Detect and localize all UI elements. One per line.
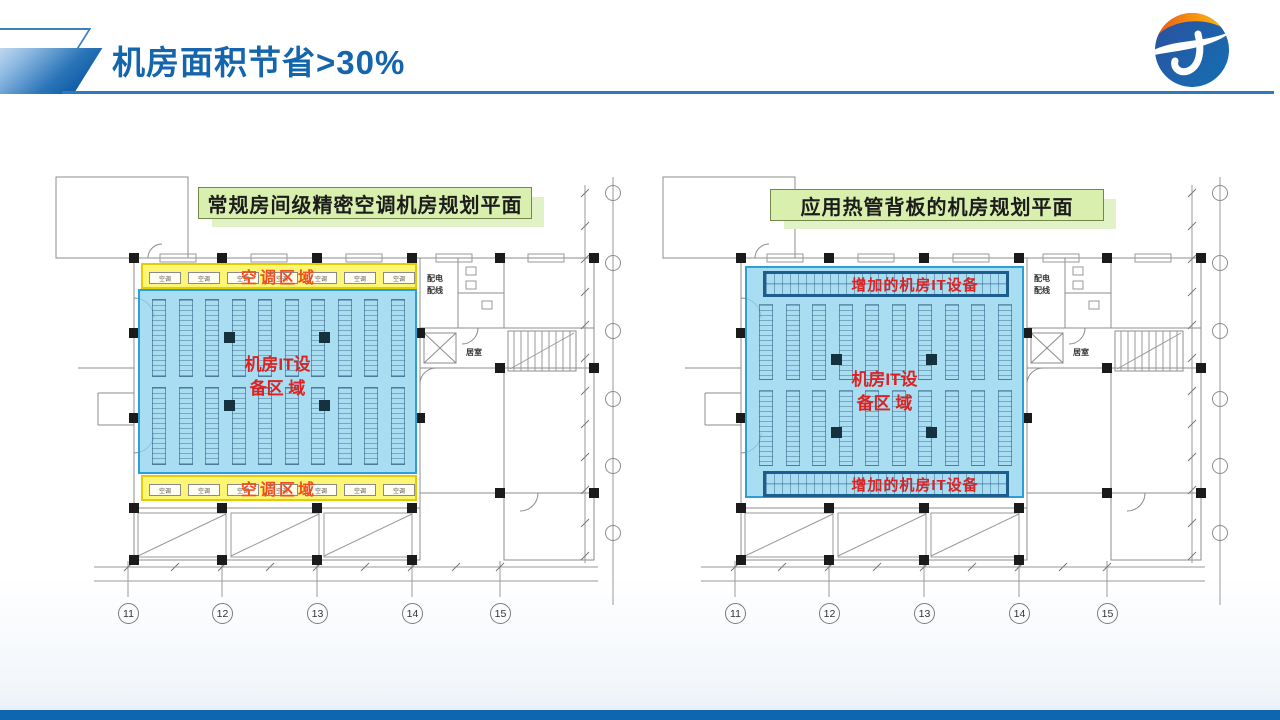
column-square [919,555,929,565]
column-square [1102,488,1112,498]
wall-rect [1073,267,1083,275]
column-square [824,503,834,513]
door-arc [520,493,538,511]
column-square [312,555,322,565]
column-square [129,555,139,565]
it-zone-label: 机房IT设 备区 域 [747,368,1022,416]
door-arc [1069,328,1085,344]
wall-line [745,514,833,556]
right-floor-plan: 应用热管背板的机房规划平面 增加的机房IT设备 机房IT设 备区 域 增加的机房… [645,163,1257,628]
column-square [217,253,227,263]
column-square [1196,488,1206,498]
column-square [736,503,746,513]
column-square [1102,363,1112,373]
left-floor-plan: 常规房间级精密空调机房规划平面 空调区域 空调空调空调空调空调空调空调 机房IT… [38,163,650,628]
column-square [919,503,929,513]
it-zone-label-line1: 机房IT设 [140,353,415,377]
wall-line [838,514,926,556]
header-decor-gradient-shape [0,48,102,94]
ac-zone-bottom: 空调区域 空调空调空调空调空调空调空调 [141,475,417,501]
column-square [1014,253,1024,263]
added-it-box-bottom: 增加的机房IT设备 [763,471,1009,497]
interior-column [319,400,330,411]
column-square [589,488,599,498]
grid-axis-number: 12 [819,603,840,624]
wall-rect [466,281,476,289]
wall-line [138,514,226,556]
grid-axis-number: 14 [1009,603,1030,624]
column-square [824,253,834,263]
it-equipment-zone-right: 增加的机房IT设备 机房IT设 备区 域 增加的机房IT设备 [745,266,1024,498]
interior-column [926,354,937,365]
column-square [1102,253,1112,263]
power-room-line2: 配线 [427,285,443,297]
wall-rect [504,493,594,560]
grid-axis-number: 12 [212,603,233,624]
interior-column [831,354,842,365]
column-square [736,555,746,565]
grid-axis-number: 15 [490,603,511,624]
power-room-line2: 配线 [1034,285,1050,297]
interior-column [319,332,330,343]
slide: { "header": { "title": "机房面积节省>30%", "ti… [0,0,1280,720]
power-room-label: 配电 配线 [1034,273,1050,297]
column-square [495,363,505,373]
door-arc [420,368,436,384]
wall-rect [1089,301,1099,309]
column-square [589,363,599,373]
wall-rect [1111,493,1201,560]
power-room-line1: 配电 [1034,273,1050,285]
column-square [407,503,417,513]
column-square [824,555,834,565]
it-zone-label-line2: 备区 域 [140,377,415,401]
interior-column [224,332,235,343]
ac-zone-bottom-label: 空调区域 [143,477,415,499]
grid-axis-number: 11 [725,603,746,624]
column-square [1014,555,1024,565]
grid-axis-number: 13 [914,603,935,624]
added-it-box-top: 增加的机房IT设备 [763,271,1009,297]
page-title: 机房面积节省>30% [112,36,405,84]
grid-axis-number: 11 [118,603,139,624]
column-square [589,253,599,263]
duty-room-label: 居室 [466,347,482,359]
power-room-label: 配电 配线 [427,273,443,297]
grid-axis-number: 14 [402,603,423,624]
column-square [312,253,322,263]
column-square [312,503,322,513]
it-zone-label-line1: 机房IT设 [747,368,1022,392]
added-it-top-label: 增加的机房IT设备 [793,274,978,295]
wall-rect [466,267,476,275]
column-square [736,253,746,263]
wall-rect [1073,281,1083,289]
interior-column [926,427,937,438]
footer-accent-bar [0,710,1280,720]
ac-zone-top: 空调区域 空调空调空调空调空调空调空调 [141,263,417,289]
wall-rect [482,301,492,309]
door-arc [1027,368,1043,384]
power-room-line1: 配电 [427,273,443,285]
wall-line [324,514,412,556]
ac-zone-top-label: 空调区域 [143,265,415,287]
wall-line [931,514,1019,556]
door-arc [462,328,478,344]
door-arc [1127,493,1145,511]
added-it-bottom-label: 增加的机房IT设备 [793,474,978,495]
company-logo [1152,10,1232,90]
left-plan-title: 常规房间级精密空调机房规划平面 [198,187,532,219]
column-square [217,503,227,513]
interior-column [831,427,842,438]
duty-room-label: 居室 [1073,347,1089,359]
column-square [1014,503,1024,513]
column-square [407,555,417,565]
it-zone-label-line2: 备区 域 [747,392,1022,416]
it-zone-label: 机房IT设 备区 域 [140,353,415,401]
wall-line [231,514,319,556]
column-square [1196,253,1206,263]
column-square [217,555,227,565]
header-underline [62,91,1274,94]
grid-axis-number: 13 [307,603,328,624]
wall-rect [56,177,188,258]
grid-axis-number: 15 [1097,603,1118,624]
column-square [495,488,505,498]
column-square [495,253,505,263]
interior-column [224,400,235,411]
column-square [129,503,139,513]
column-square [919,253,929,263]
right-plan-title: 应用热管背板的机房规划平面 [770,189,1104,221]
column-square [407,253,417,263]
it-equipment-zone-left: 机房IT设 备区 域 [138,289,417,474]
column-square [129,253,139,263]
column-square [1196,363,1206,373]
